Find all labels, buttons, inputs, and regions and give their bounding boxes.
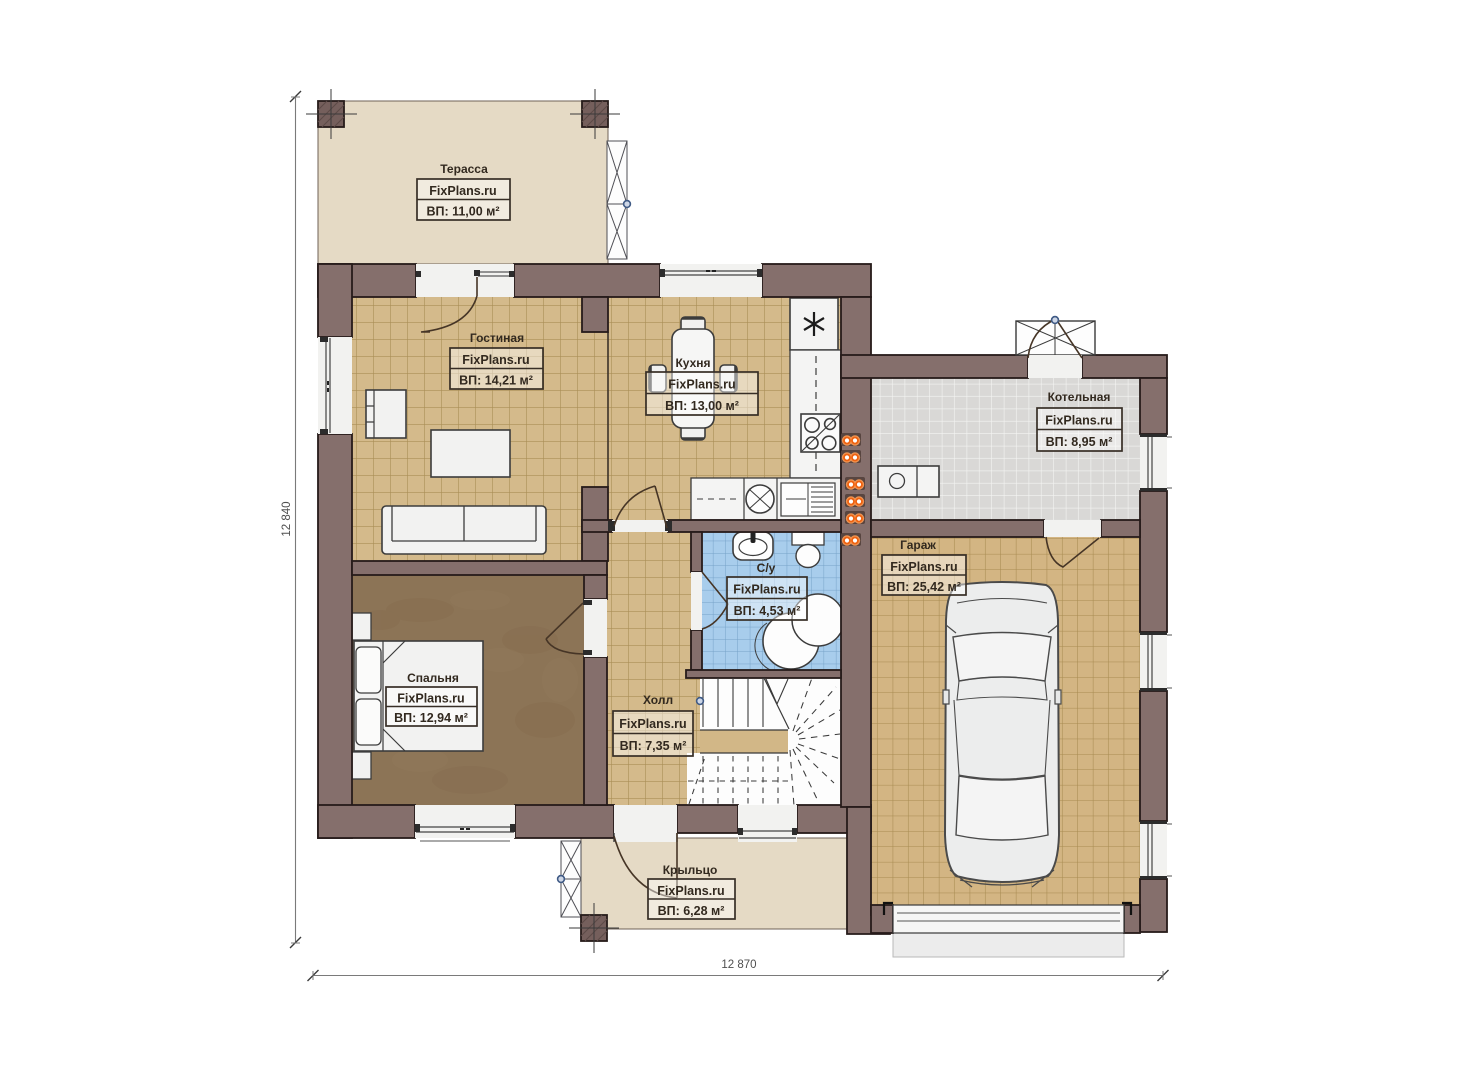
svg-text:12 840: 12 840 [281,501,293,536]
svg-text:Котельная: Котельная [1048,390,1111,404]
svg-text:ВП: 7,35 м²: ВП: 7,35 м² [620,739,687,753]
svg-text:Терасса: Терасса [440,162,488,176]
svg-text:Гостиная: Гостиная [470,331,524,345]
svg-text:ВП: 11,00 м²: ВП: 11,00 м² [426,205,499,219]
svg-text:FixPlans.ru: FixPlans.ru [462,353,529,367]
svg-text:ВП: 13,00 м²: ВП: 13,00 м² [665,399,739,413]
svg-text:FixPlans.ru: FixPlans.ru [668,378,735,392]
svg-text:Крыльцо: Крыльцо [663,863,718,877]
svg-text:ВП: 6,28 м²: ВП: 6,28 м² [658,904,725,918]
svg-text:ВП: 25,42 м²: ВП: 25,42 м² [887,580,961,594]
svg-text:ВП: 8,95 м²: ВП: 8,95 м² [1046,435,1113,449]
svg-text:Холл: Холл [643,693,673,707]
svg-text:Гараж: Гараж [900,538,936,552]
svg-text:FixPlans.ru: FixPlans.ru [397,692,464,706]
svg-text:ВП: 14,21 м²: ВП: 14,21 м² [459,374,533,388]
svg-text:FixPlans.ru: FixPlans.ru [890,560,957,574]
svg-text:ВП: 12,94 м²: ВП: 12,94 м² [394,711,468,725]
svg-text:Кухня: Кухня [675,356,710,370]
svg-text:FixPlans.ru: FixPlans.ru [657,884,724,898]
svg-text:12 870: 12 870 [721,959,756,971]
svg-text:FixPlans.ru: FixPlans.ru [733,583,800,597]
svg-text:Спальня: Спальня [407,671,459,685]
svg-text:С/у: С/у [757,561,776,575]
svg-text:FixPlans.ru: FixPlans.ru [619,717,686,731]
svg-text:FixPlans.ru: FixPlans.ru [1045,414,1112,428]
svg-text:ВП: 4,53 м²: ВП: 4,53 м² [734,604,801,618]
svg-text:FixPlans.ru: FixPlans.ru [429,184,496,198]
